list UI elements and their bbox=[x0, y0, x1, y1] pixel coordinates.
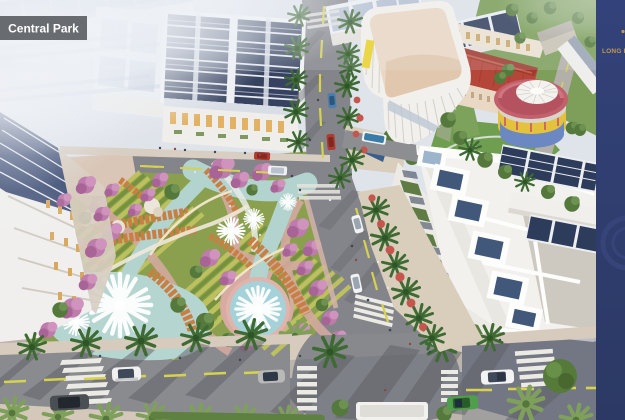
svg-text:LONG H: LONG H bbox=[602, 48, 625, 55]
svg-text:Central Park: Central Park bbox=[8, 22, 79, 36]
